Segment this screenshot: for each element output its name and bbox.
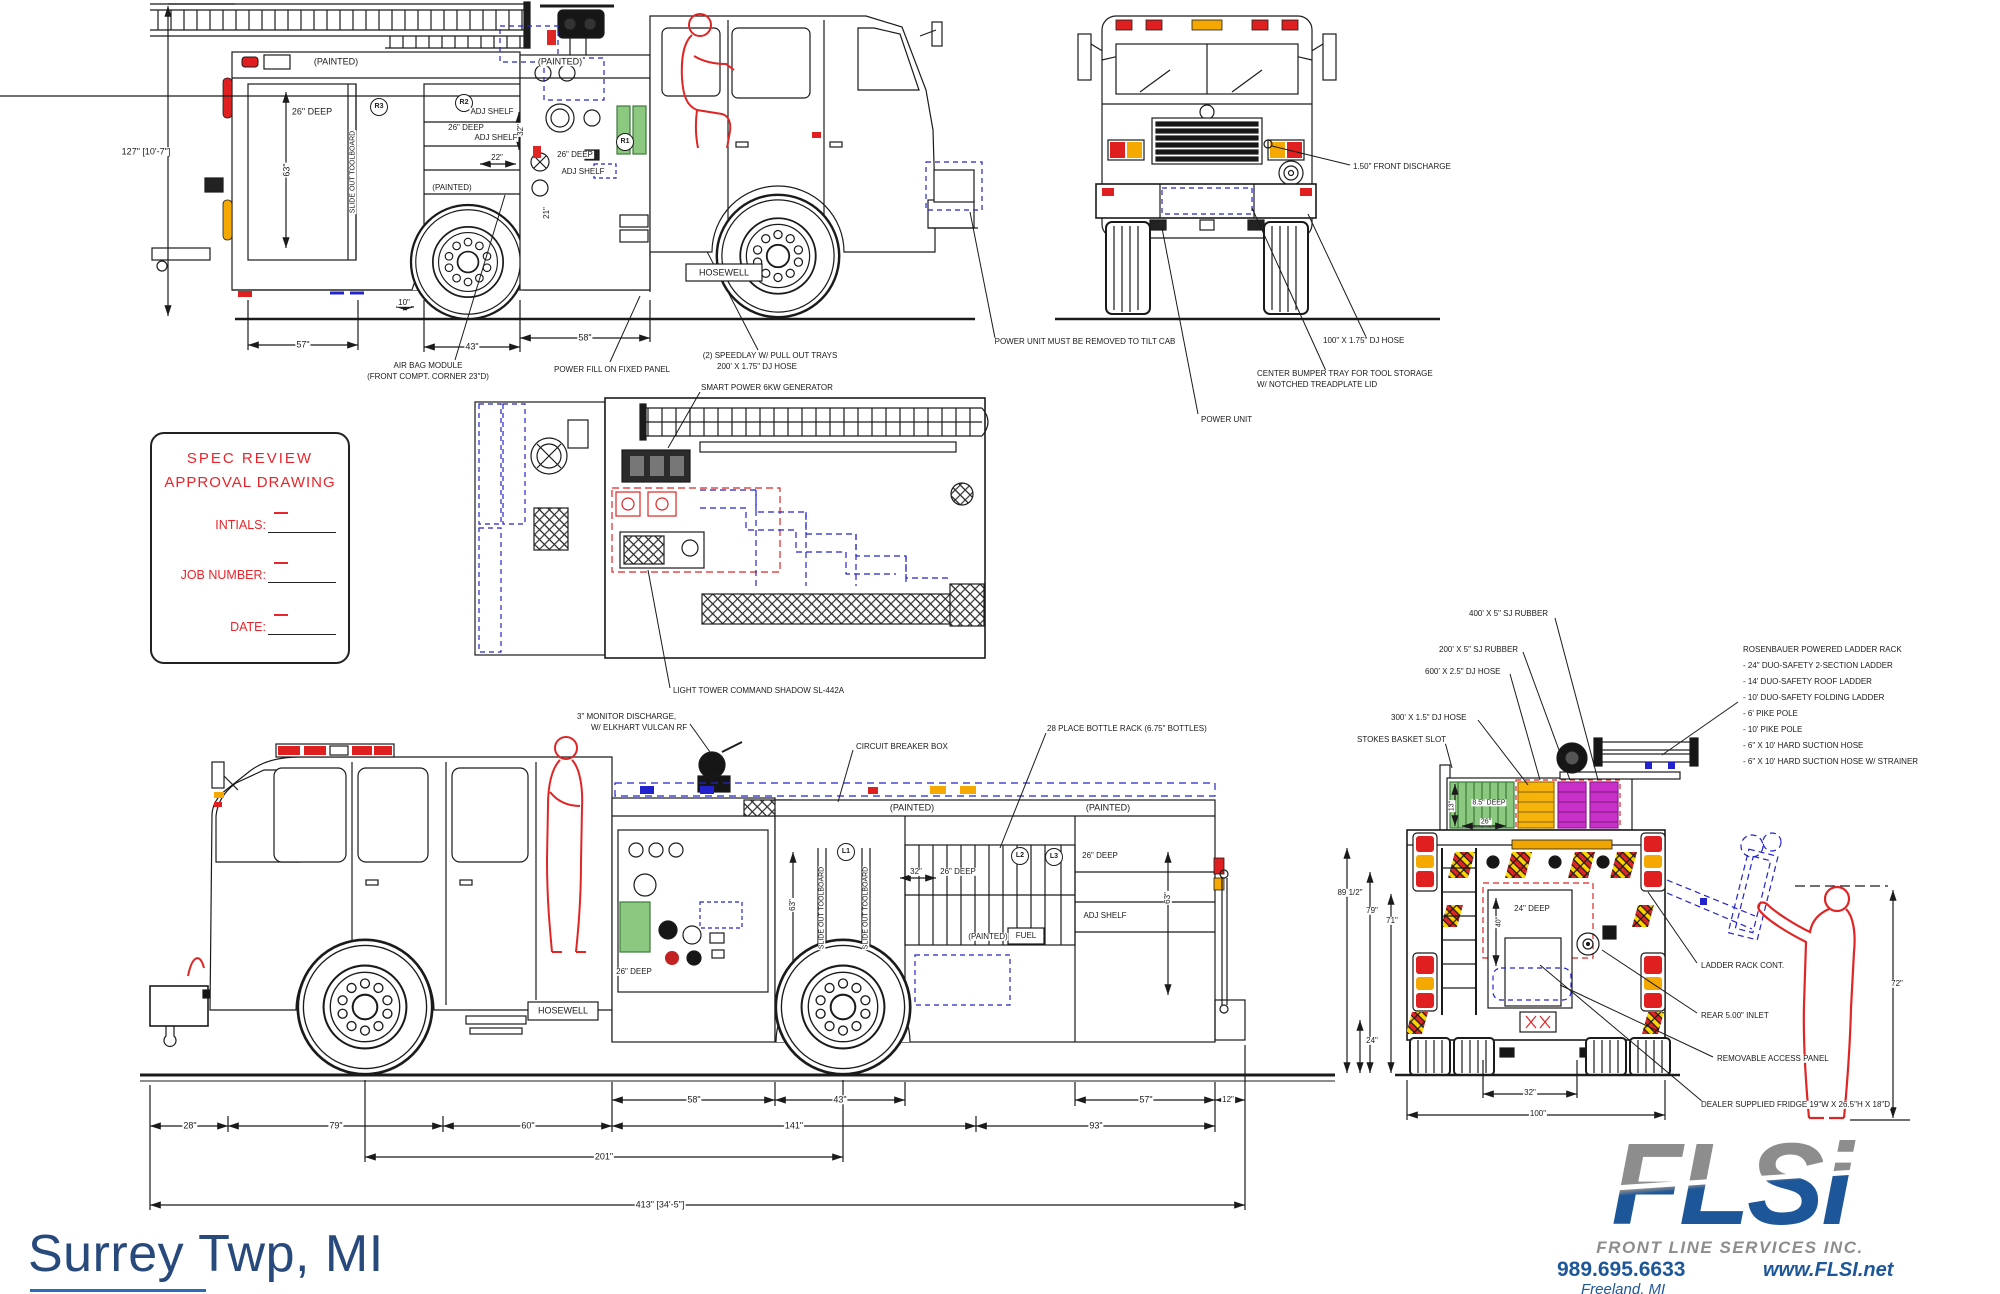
view-plan (475, 392, 988, 688)
view-side-cab-top (500, 6, 995, 338)
spec-review-title: SPEC REVIEW (152, 450, 348, 467)
job-number-label: JOB NUMBER: (181, 568, 266, 582)
view-side-full (140, 724, 1335, 1210)
logo-website: www.FLSI.net (1763, 1259, 1893, 1282)
title-underline (30, 1289, 206, 1292)
initials-label: INTIALS: (215, 518, 266, 532)
date-line (268, 634, 336, 635)
drawing-sheet: 127" [10'-7"](PAINTED)(PAINTED)26" DEEP6… (0, 0, 2000, 1294)
initials-line (268, 532, 336, 533)
date-label: DATE: (230, 620, 266, 634)
logo-city: Freeland, MI (1581, 1281, 1665, 1294)
date-mark (274, 614, 288, 616)
view-front (1078, 16, 1366, 414)
flsi-logo: FLSi FRONT LINE SERVICES INC. 989.695.66… (1545, 1128, 1923, 1294)
initials-mark (274, 512, 288, 514)
initials-row: INTIALS: (152, 518, 348, 538)
approval-drawing-title: APPROVAL DRAWING (152, 474, 348, 491)
figure-firefighter-rear (1758, 887, 1854, 1118)
job-number-row: JOB NUMBER: (152, 568, 348, 588)
view-rear (1347, 618, 1910, 1120)
project-title: Surrey Twp, MI (28, 1224, 384, 1284)
date-row: DATE: (152, 620, 348, 640)
logo-company-name: FRONT LINE SERVICES INC. (1545, 1238, 1915, 1258)
logo-phone: 989.695.6633 (1557, 1258, 1685, 1282)
flsi-logo-mark: FLSi (1545, 1128, 1923, 1240)
job-number-mark (274, 562, 288, 564)
ladder-rack-deployed (1667, 833, 1781, 940)
job-number-line (268, 582, 336, 583)
spec-review-box: SPEC REVIEW APPROVAL DRAWING INTIALS: JO… (150, 432, 350, 664)
